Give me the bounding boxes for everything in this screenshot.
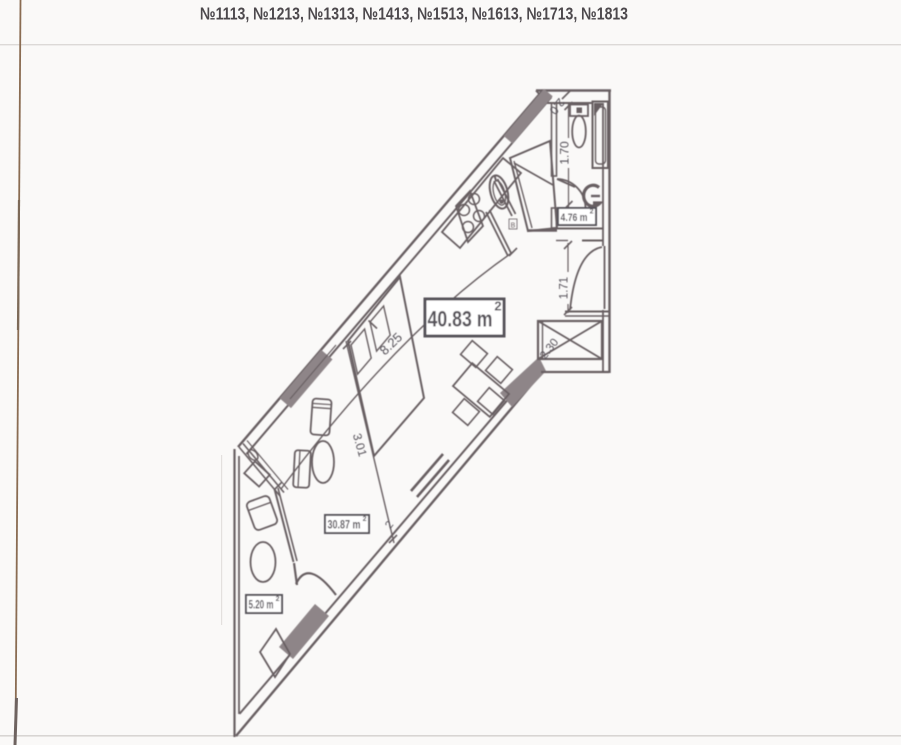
svg-text:2: 2 (276, 596, 280, 603)
svg-text:1.70: 1.70 (558, 141, 572, 165)
svg-text:3.01: 3.01 (350, 432, 370, 459)
svg-text:5.20 m: 5.20 m (249, 600, 274, 612)
svg-text:30.87 m: 30.87 m (328, 520, 361, 532)
svg-text:1.71: 1.71 (559, 277, 571, 299)
svg-text:B: B (511, 223, 516, 230)
svg-text:8.25: 8.25 (377, 330, 406, 358)
svg-text:4.76 m: 4.76 m (561, 212, 588, 224)
svg-text:2: 2 (494, 299, 501, 314)
svg-text:2: 2 (590, 209, 594, 216)
svg-text:2: 2 (383, 519, 396, 531)
svg-text:40.83 m: 40.83 m (428, 307, 493, 332)
svg-text:2: 2 (363, 516, 367, 523)
svg-text:№1113, №1213, №1313, №1413, №1: №1113, №1213, №1313, №1413, №1513, №1613… (200, 4, 628, 24)
